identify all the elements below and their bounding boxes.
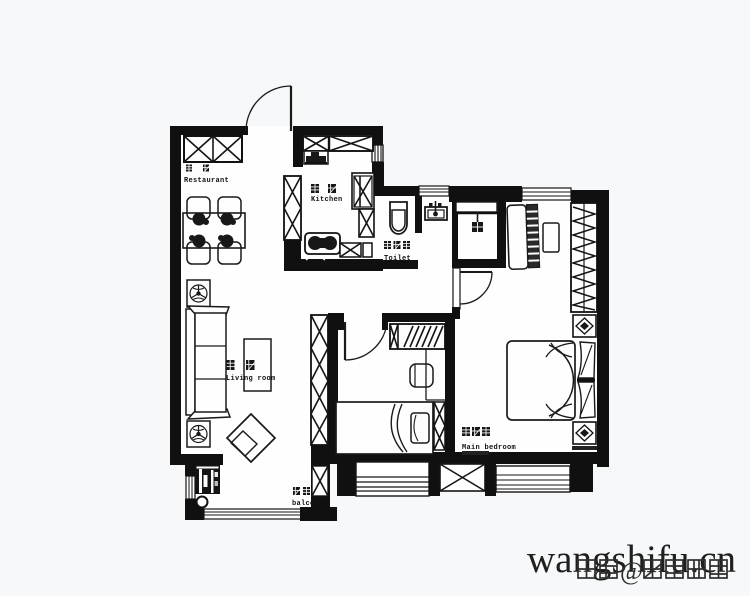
svg-text:@: @: [620, 558, 643, 585]
svg-text:Restaurant: Restaurant: [184, 177, 229, 185]
svg-text:Toilet: Toilet: [384, 255, 411, 263]
svg-text:Main bedroom: Main bedroom: [462, 444, 516, 452]
svg-text:Kitchen: Kitchen: [311, 196, 343, 204]
svg-text:balcony: balcony: [292, 500, 324, 508]
svg-text:Living room: Living room: [226, 375, 276, 383]
